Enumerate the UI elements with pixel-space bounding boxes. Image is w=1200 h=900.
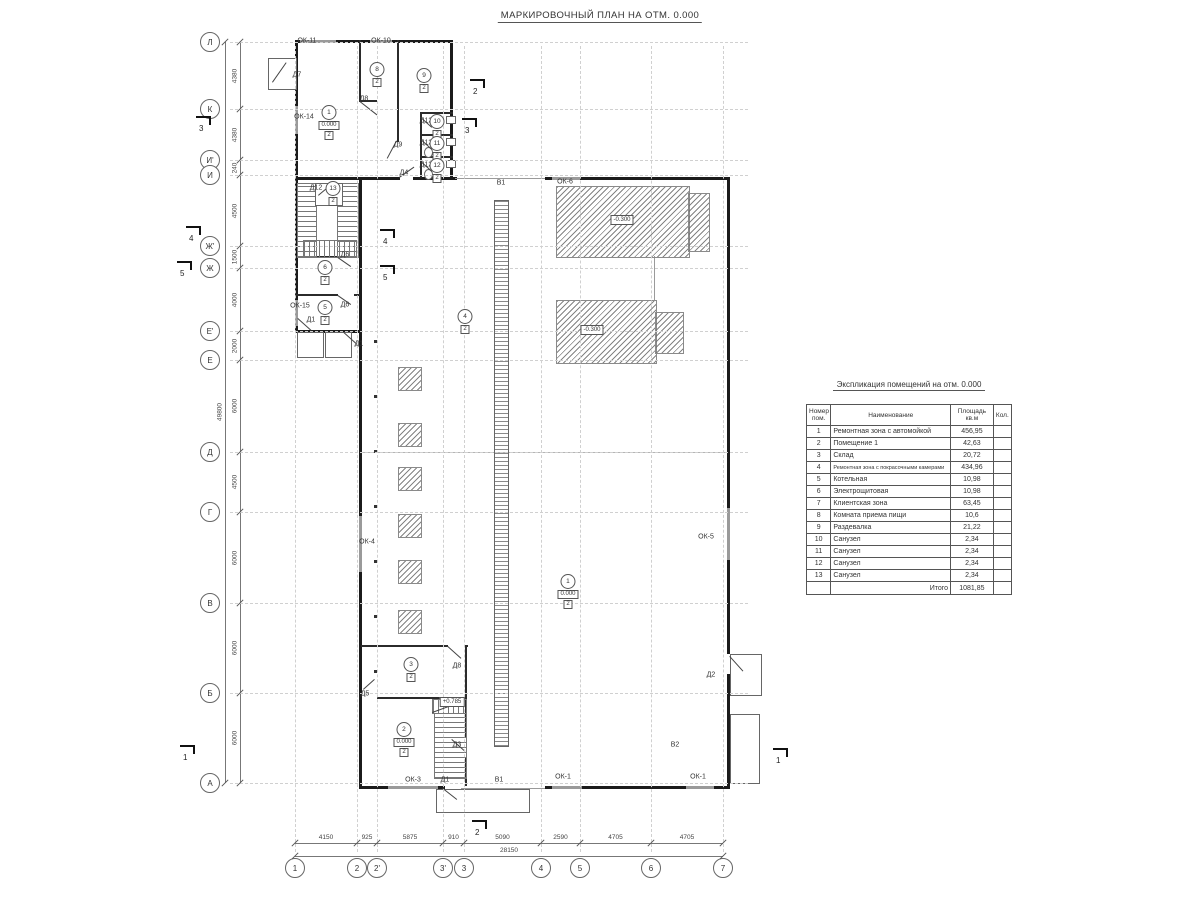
table-cell: 21,22 — [951, 522, 994, 534]
schedule-header: Наименование — [831, 405, 951, 426]
partition-wall — [397, 40, 399, 142]
table-row: 9Раздевалка21,22 — [807, 522, 1012, 534]
pit-hatch — [655, 312, 684, 354]
floor-type-mark: 2 — [372, 78, 381, 87]
axis-bubble: 3' — [433, 858, 453, 878]
room-number: 8 — [370, 62, 385, 77]
table-cell: 2 — [807, 438, 831, 450]
schedule-table: Номер пом.НаименованиеПлощадь кв.мКол. 1… — [806, 404, 1012, 595]
window-label: ОК-4 — [359, 539, 375, 546]
table-cell: Ремонтная зона с покрасочными камерами — [831, 462, 951, 474]
axis-bubble: Ж — [200, 258, 220, 278]
section-number: 1 — [776, 757, 780, 765]
dimension-value: 6000 — [232, 731, 239, 745]
conveyor-strip — [494, 200, 509, 747]
window-segment — [552, 786, 582, 789]
room-tag: 132 — [326, 181, 341, 206]
section-number: 4 — [383, 238, 387, 246]
table-row: 1Ремонтная зона с автомойкой456,95 — [807, 426, 1012, 438]
room-number: 2 — [396, 722, 411, 737]
equipment-hatch — [398, 423, 422, 447]
room-number: 3 — [404, 657, 419, 672]
room-number: 11 — [430, 136, 445, 151]
elevation-mark: -0.300 — [610, 215, 633, 225]
section-number: 5 — [383, 274, 387, 282]
room-tag: 122 — [430, 158, 445, 183]
section-number: 2 — [475, 829, 479, 837]
door-label: Д1 — [355, 341, 364, 348]
grid-line-row — [230, 783, 748, 784]
table-row: 6Электрощитовая10,98 — [807, 486, 1012, 498]
room-tag: 42 — [458, 309, 473, 334]
elevation-mark: -0.300 — [580, 325, 603, 335]
room-tag: 10.0002 — [557, 574, 578, 609]
table-cell: Ремонтная зона с автомойкой — [831, 426, 951, 438]
table-cell: Санузел — [831, 570, 951, 582]
door-swing — [447, 646, 461, 659]
sink-fixture — [446, 138, 456, 146]
dimension-value: 1500 — [232, 250, 239, 264]
floor-type-mark: 2 — [460, 325, 469, 334]
grid-line-col — [541, 46, 542, 852]
table-cell: Электрощитовая — [831, 486, 951, 498]
window-label: ОК-1 — [555, 774, 571, 781]
partition-wall — [361, 645, 448, 647]
grid-line-row — [230, 452, 748, 453]
axis-bubble: Е — [200, 350, 220, 370]
table-cell: 5 — [807, 474, 831, 486]
table-cell: Котельная — [831, 474, 951, 486]
dimension-value: 2590 — [553, 834, 567, 841]
door-label: Д6 — [341, 302, 350, 309]
equipment-hatch — [398, 467, 422, 491]
table-cell — [993, 426, 1011, 438]
section-number: 3 — [465, 127, 469, 135]
table-cell: 9 — [807, 522, 831, 534]
table-cell: 10,98 — [951, 486, 994, 498]
window-label: ОК-5 — [698, 534, 714, 541]
table-cell — [993, 534, 1011, 546]
table-cell — [993, 582, 1011, 595]
table-cell — [993, 498, 1011, 510]
table-cell — [993, 486, 1011, 498]
schedule-title: Экспликация помещений на отм. 0.000 — [833, 380, 986, 391]
table-cell: 42,63 — [951, 438, 994, 450]
elevation-mark: +0.785 — [440, 697, 465, 707]
gate-label: В2 — [671, 742, 680, 749]
room-number: 9 — [417, 68, 432, 83]
section-marker: 1 — [180, 745, 195, 762]
room-tag: 82 — [370, 62, 385, 87]
gate-label: В1 — [495, 777, 504, 784]
section-marker: 4 — [186, 226, 201, 243]
room-number: 13 — [326, 181, 341, 196]
axis-bubble: 2 — [347, 858, 367, 878]
sink-fixture — [446, 160, 456, 168]
floor-type-mark: 2 — [320, 276, 329, 285]
equipment-hatch — [398, 367, 422, 391]
pit-hatch — [688, 193, 710, 252]
grid-line-row — [230, 693, 748, 694]
equipment-hatch — [398, 560, 422, 584]
table-cell — [807, 582, 831, 595]
grid-line-col — [464, 46, 465, 852]
dimension-value: 4000 — [232, 292, 239, 306]
room-number: 6 — [318, 260, 333, 275]
axis-bubble: Е' — [200, 321, 220, 341]
window-label: ОК-11 — [297, 38, 316, 45]
floor-plan-sheet: МАРКИРОВОЧНЫЙ ПЛАН НА ОТМ. 0.000 — [0, 0, 1200, 900]
window-label: ОК-10 — [371, 38, 391, 45]
floor-type-mark: 2 — [419, 84, 428, 93]
room-tag: 20.0002 — [393, 722, 414, 757]
axis-bubble: 6 — [641, 858, 661, 878]
room-number: 12 — [430, 158, 445, 173]
door-label: Д1 — [307, 317, 316, 324]
section-marker: 3 — [462, 118, 477, 135]
grid-line-row — [230, 603, 748, 604]
dimension-value: 910 — [448, 834, 459, 841]
gate-label: В1 — [497, 180, 506, 187]
grid-line-row — [230, 246, 748, 247]
table-cell: 434,96 — [951, 462, 994, 474]
floor-type-mark: 2 — [320, 316, 329, 325]
room-tag: 10.0002 — [318, 105, 339, 140]
section-marker: 2 — [470, 79, 485, 96]
room-tag: 52 — [318, 300, 333, 325]
grid-line-row — [230, 268, 748, 269]
door-label: Д2 — [707, 672, 716, 679]
table-cell: 8 — [807, 510, 831, 522]
table-cell — [993, 474, 1011, 486]
table-cell — [993, 462, 1011, 474]
section-marker: 5 — [380, 265, 395, 282]
table-cell: Клиентская зона — [831, 498, 951, 510]
section-number: 1 — [183, 754, 187, 762]
table-cell: 12 — [807, 558, 831, 570]
table-row: 11Санузел2,34 — [807, 546, 1012, 558]
door-label: Д9 — [394, 142, 403, 149]
dimension-total: 28150 — [500, 847, 518, 854]
door-label: Д8 — [360, 96, 369, 103]
room-number: 4 — [458, 309, 473, 324]
axis-bubble: Б — [200, 683, 220, 703]
door-label: Д3 — [453, 742, 462, 749]
grid-line-col — [651, 46, 652, 852]
table-cell: Санузел — [831, 558, 951, 570]
door-label: Д1 — [441, 777, 450, 784]
schedule-header: Кол. — [993, 405, 1011, 426]
dimension-value: 4705 — [608, 834, 622, 841]
axis-bubble: 7 — [713, 858, 733, 878]
axis-bubble: В — [200, 593, 220, 613]
window-label: ОК-1 — [690, 774, 706, 781]
dimension-line — [295, 843, 723, 844]
floor-type-mark: 2 — [328, 197, 337, 206]
table-row: 10Санузел2,34 — [807, 534, 1012, 546]
room-number: 1 — [560, 574, 575, 589]
section-number: 4 — [189, 235, 193, 243]
section-number: 5 — [180, 270, 184, 278]
room-elevation: 0.000 — [557, 590, 578, 599]
dimension-value: 6000 — [232, 550, 239, 564]
table-cell: 63,45 — [951, 498, 994, 510]
door-label: Д8 — [453, 663, 462, 670]
dimension-value: 925 — [362, 834, 373, 841]
table-cell: 10,98 — [951, 474, 994, 486]
table-cell: 10,6 — [951, 510, 994, 522]
table-row: 5Котельная10,98 — [807, 474, 1012, 486]
room-number: 10 — [430, 114, 445, 129]
table-cell: Санузел — [831, 534, 951, 546]
section-marker: 5 — [177, 261, 192, 278]
floor-type-mark: 2 — [406, 673, 415, 682]
axis-bubble: Д — [200, 442, 220, 462]
table-cell: 4 — [807, 462, 831, 474]
porch — [730, 714, 760, 784]
equipment-hatch — [398, 610, 422, 634]
schedule-header-row: Номер пом.НаименованиеПлощадь кв.мКол. — [807, 405, 1012, 426]
table-cell: 20,72 — [951, 450, 994, 462]
wall-segment — [727, 177, 730, 654]
dimension-value: 4380 — [232, 127, 239, 141]
window-label: ОК-3 — [405, 777, 421, 784]
room-number: 1 — [321, 105, 336, 120]
axis-bubble: А — [200, 773, 220, 793]
table-row: 8Комната приема пищи10,6 — [807, 510, 1012, 522]
window-label: ОК-6 — [557, 179, 573, 186]
table-cell: 6 — [807, 486, 831, 498]
table-cell — [993, 438, 1011, 450]
grid-line-row — [230, 331, 748, 332]
table-row: 3Склад20,72 — [807, 450, 1012, 462]
floor-type-mark: 2 — [324, 131, 333, 140]
floor-type-mark: 2 — [432, 174, 441, 183]
room-number: 5 — [318, 300, 333, 315]
total-total_value: 1081,85 — [951, 582, 994, 595]
dimension-value: 240 — [232, 162, 239, 173]
dimension-line — [240, 42, 241, 783]
table-cell: 2,34 — [951, 570, 994, 582]
axis-bubble: 2' — [367, 858, 387, 878]
partition-wall — [295, 294, 338, 296]
floor-type-mark: 2 — [399, 748, 408, 757]
grid-line-col — [357, 46, 358, 852]
door-label: Д7 — [293, 72, 302, 79]
room-tag: 62 — [318, 260, 333, 285]
axis-bubble: 3 — [454, 858, 474, 878]
door-label: Д4 — [400, 170, 409, 177]
room-elevation: 0.000 — [393, 738, 414, 747]
dimension-value: 4500 — [232, 475, 239, 489]
table-row: 4Ремонтная зона с покрасочными камерами4… — [807, 462, 1012, 474]
axis-bubble: 1 — [285, 858, 305, 878]
dimension-value: 2000 — [232, 338, 239, 352]
table-cell: 3 — [807, 450, 831, 462]
window-label: ОК-15 — [290, 303, 310, 310]
pit-hatch — [556, 300, 657, 364]
plan-drawing: ЛКИ'ИЖ'ЖЕ'ЕДГВБА122'3'345674380438024045… — [0, 0, 1200, 900]
door-label: Д5 — [361, 691, 370, 698]
dimension-value: 4150 — [319, 834, 333, 841]
window-segment — [727, 508, 730, 560]
table-cell: 2,34 — [951, 534, 994, 546]
grid-line-col — [295, 46, 296, 852]
schedule-header: Площадь кв.м — [951, 405, 994, 426]
stair-flight — [434, 713, 467, 779]
porch — [297, 332, 324, 358]
table-row: 13Санузел2,34 — [807, 570, 1012, 582]
axis-bubble: Г — [200, 502, 220, 522]
grid-line-col — [723, 46, 724, 852]
dimension-total: 49800 — [217, 403, 224, 421]
dimension-value: 4705 — [680, 834, 694, 841]
dimension-line — [225, 42, 226, 783]
table-cell — [993, 546, 1011, 558]
axis-bubble: И — [200, 165, 220, 185]
dimension-value: 5875 — [403, 834, 417, 841]
table-cell: 2,34 — [951, 558, 994, 570]
table-cell — [993, 558, 1011, 570]
section-marker: 2 — [472, 820, 487, 837]
schedule-header: Номер пом. — [807, 405, 831, 426]
table-row: 2Помещение 142,63 — [807, 438, 1012, 450]
dimension-value: 4500 — [232, 203, 239, 217]
table-cell: Санузел — [831, 546, 951, 558]
room-elevation: 0.000 — [318, 121, 339, 130]
table-row: 7Клиентская зона63,45 — [807, 498, 1012, 510]
table-cell: 7 — [807, 498, 831, 510]
axis-bubble: 4 — [531, 858, 551, 878]
grid-line-row — [230, 360, 748, 361]
table-cell: 2,34 — [951, 546, 994, 558]
grid-line-row — [230, 512, 748, 513]
window-segment — [388, 786, 438, 789]
grid-line-col — [580, 46, 581, 852]
dimension-value: 6000 — [232, 399, 239, 413]
table-cell: Склад — [831, 450, 951, 462]
table-cell — [993, 570, 1011, 582]
table-cell: Помещение 1 — [831, 438, 951, 450]
door-swing — [363, 679, 375, 690]
sink-fixture — [446, 116, 456, 124]
grid-line-row — [230, 175, 748, 176]
wall-segment — [450, 40, 453, 180]
section-number: 2 — [473, 88, 477, 96]
section-marker: 3 — [196, 116, 211, 133]
grid-line-row — [230, 109, 748, 110]
table-cell: Раздевалка — [831, 522, 951, 534]
table-cell: Комната приема пищи — [831, 510, 951, 522]
table-cell — [993, 510, 1011, 522]
equipment-hatch — [398, 514, 422, 538]
axis-bubble: Л — [200, 32, 220, 52]
door-label: Д12 — [310, 185, 323, 192]
table-total-row: Итого1081,85 — [807, 582, 1012, 595]
section-number: 3 — [199, 125, 203, 133]
dimension-value: 6000 — [232, 641, 239, 655]
table-cell: 456,95 — [951, 426, 994, 438]
table-cell: 13 — [807, 570, 831, 582]
door-label: Д6 — [341, 252, 350, 259]
porch — [730, 654, 762, 696]
pit-outline — [654, 256, 655, 300]
dimension-line — [295, 856, 723, 857]
partition-wall — [359, 40, 361, 102]
section-marker: 1 — [773, 748, 788, 765]
table-cell — [993, 450, 1011, 462]
dimension-tick — [221, 779, 228, 786]
table-cell: 1 — [807, 426, 831, 438]
axis-bubble: 5 — [570, 858, 590, 878]
table-row: 12Санузел2,34 — [807, 558, 1012, 570]
table-cell: 10 — [807, 534, 831, 546]
room-schedule: Экспликация помещений на отм. 0.000 Номе… — [806, 380, 1012, 595]
room-tag: 92 — [417, 68, 432, 93]
dimension-value: 4380 — [232, 68, 239, 82]
room-tag: 32 — [404, 657, 419, 682]
grid-line-col — [377, 46, 378, 852]
section-marker: 4 — [380, 229, 395, 246]
window-label: ОК-14 — [294, 114, 314, 121]
dimension-value: 5090 — [495, 834, 509, 841]
axis-bubble: Ж' — [200, 236, 220, 256]
grid-line-row — [230, 160, 748, 161]
floor-type-mark: 2 — [563, 600, 572, 609]
wall-segment — [295, 177, 400, 180]
table-cell — [993, 522, 1011, 534]
total-total_label: Итого — [831, 582, 951, 595]
window-segment — [686, 786, 714, 789]
table-cell: 11 — [807, 546, 831, 558]
